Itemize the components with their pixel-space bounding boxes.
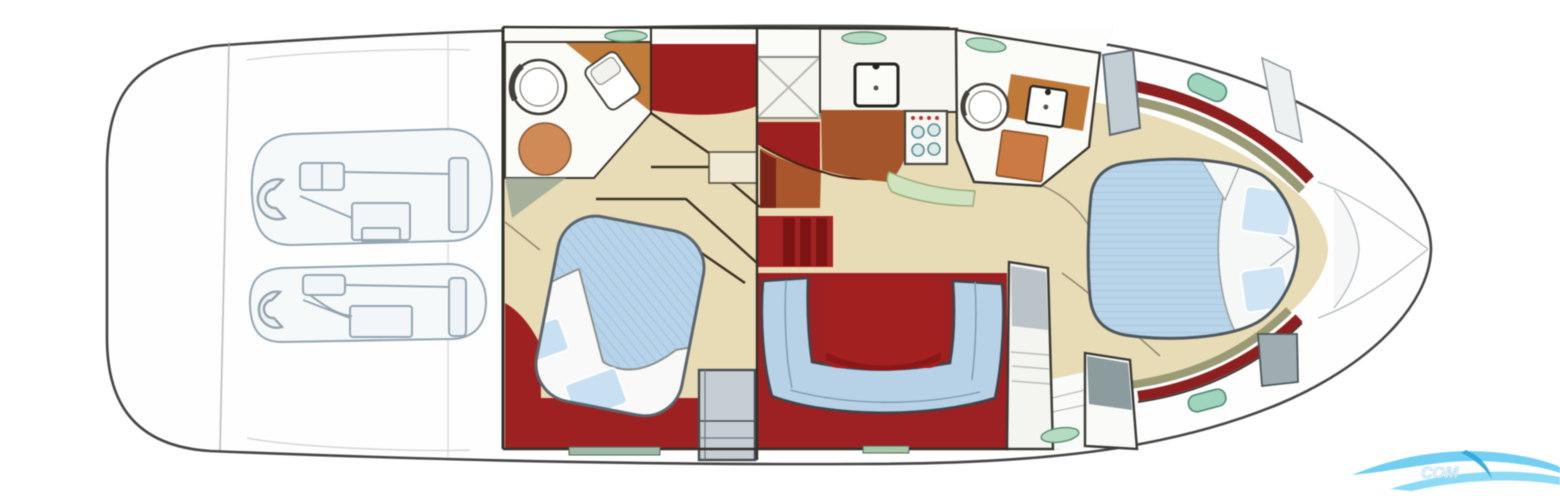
svg-text:COM: COM — [1421, 465, 1459, 482]
